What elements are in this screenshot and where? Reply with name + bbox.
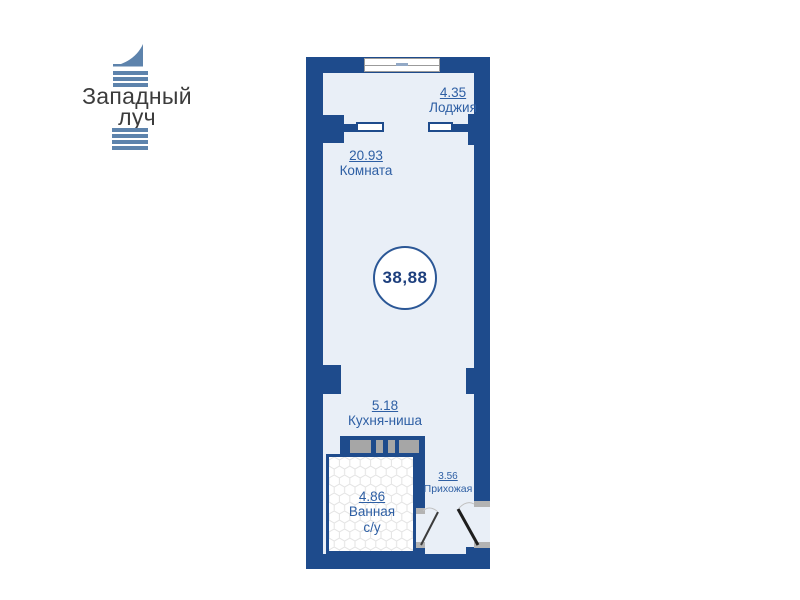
room-area-value: 4.35 — [429, 85, 477, 100]
bathroom-door-swing-arc — [423, 508, 437, 511]
bathroom-door-leaf — [421, 512, 438, 545]
room-label-kitchen-niche: 5.18 Кухня-ниша — [348, 398, 422, 429]
room-label-hallway: 3.56 Прихожая — [424, 471, 473, 496]
entrance-door-swing-arc — [459, 503, 474, 508]
total-area-value: 38,88 — [382, 268, 427, 288]
room-area-value: 4.86 — [349, 489, 395, 504]
room-name: Лоджия — [429, 100, 477, 116]
room-label-bathroom: 4.86 Ванная с/у — [349, 489, 395, 536]
room-name-line2: с/у — [349, 520, 395, 536]
room-label-loggia: 4.35 Лоджия — [429, 85, 477, 116]
total-area-badge: 38,88 — [373, 246, 437, 310]
room-name: Комната — [340, 163, 393, 179]
room-name: Ванная — [349, 504, 395, 520]
room-area-value: 5.18 — [348, 398, 422, 413]
room-area-value: 3.56 — [424, 471, 473, 483]
room-name: Кухня-ниша — [348, 413, 422, 429]
entrance-door-leaf — [458, 509, 478, 545]
room-name: Прихожая — [424, 483, 473, 496]
page: Западный луч — [0, 0, 800, 600]
room-label-room: 20.93 Комната — [340, 148, 393, 179]
room-area-value: 20.93 — [340, 148, 393, 163]
